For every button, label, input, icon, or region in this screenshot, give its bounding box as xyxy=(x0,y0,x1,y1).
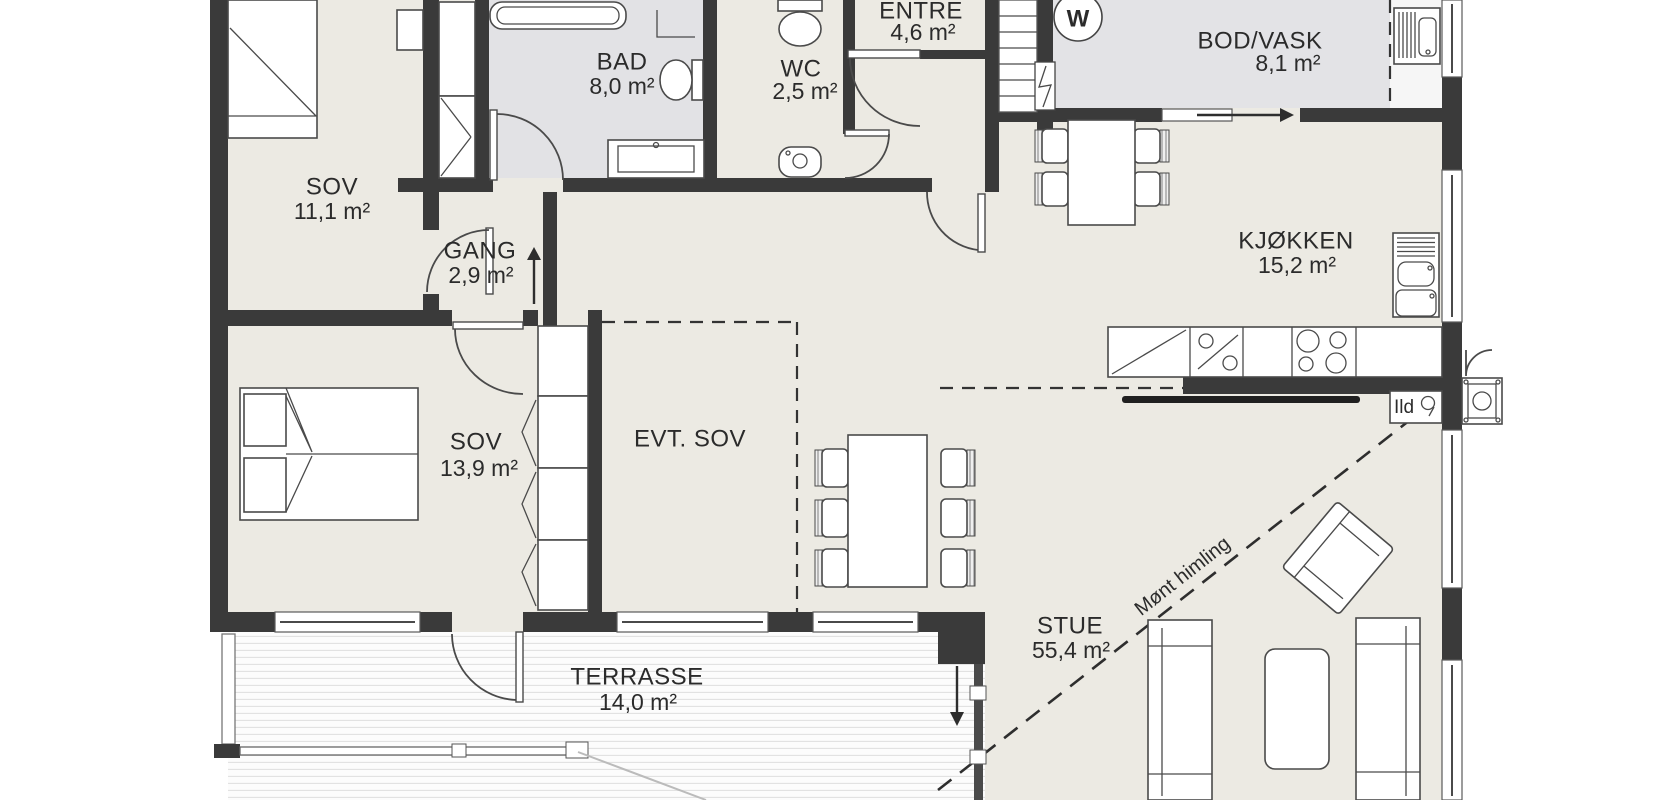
wall-segment xyxy=(588,310,602,612)
slide-handle xyxy=(970,750,986,764)
room-area: 11,1 m² xyxy=(294,198,371,224)
wall-segment xyxy=(543,192,557,326)
closet-box xyxy=(538,326,588,396)
room-label: EVT. SOV xyxy=(634,425,746,452)
wall-segment xyxy=(920,50,985,59)
chair-back xyxy=(967,450,975,486)
fireplace-label: Ild xyxy=(1394,397,1414,418)
railing-post xyxy=(566,742,588,758)
wall-segment xyxy=(1442,77,1462,170)
chair-back xyxy=(1160,173,1169,205)
door-leaf xyxy=(848,50,920,58)
chair xyxy=(822,449,848,487)
wall-segment xyxy=(703,0,717,192)
wall-segment xyxy=(768,612,813,632)
room-area: 14,0 m² xyxy=(599,689,677,715)
toilet-tank xyxy=(692,60,703,100)
toilet-icon xyxy=(660,60,692,100)
wall-segment xyxy=(228,310,452,326)
closet-box xyxy=(538,540,588,610)
wall-segment xyxy=(398,178,493,192)
toilet-icon xyxy=(779,12,821,46)
room-label: STUE xyxy=(1037,612,1103,639)
sofa xyxy=(1356,618,1420,800)
chair xyxy=(941,449,967,487)
wall-segment xyxy=(523,612,617,632)
railing-post xyxy=(452,744,466,757)
chair xyxy=(1042,129,1068,163)
floor-plan-page: W xyxy=(0,0,1670,800)
wall-segment xyxy=(475,0,489,192)
coffee-table xyxy=(1265,649,1329,769)
bed-double xyxy=(240,388,418,520)
room-area: 4,6 m² xyxy=(890,19,956,45)
air-intake-arc xyxy=(1466,350,1492,376)
dining-table-group xyxy=(815,435,975,587)
wall-segment xyxy=(843,0,855,134)
door-leaf xyxy=(453,322,523,329)
room-area: 8,1 m² xyxy=(1255,50,1321,76)
sofa xyxy=(1148,620,1212,800)
wall-segment xyxy=(423,0,439,230)
wall-segment xyxy=(1300,108,1442,122)
wc-sink xyxy=(779,147,821,177)
chair xyxy=(941,549,967,587)
door-leaf xyxy=(845,130,889,136)
room-label: SOV xyxy=(450,428,502,455)
sink-counter xyxy=(1393,233,1439,317)
bathtub xyxy=(490,2,626,29)
wall-segment xyxy=(843,178,855,192)
door-leaf xyxy=(490,110,497,180)
closet-box xyxy=(439,2,475,96)
chair xyxy=(822,549,848,587)
wall-segment xyxy=(563,178,703,192)
slide-handle xyxy=(970,686,986,700)
railing-corner-post xyxy=(214,744,240,758)
wall-segment xyxy=(855,178,932,192)
railing-left xyxy=(222,634,235,744)
room-label: KJØKKEN xyxy=(1238,227,1354,254)
wall-segment xyxy=(1442,322,1462,430)
chair-back xyxy=(1160,130,1169,162)
closet-box xyxy=(538,468,588,540)
chair xyxy=(1042,172,1068,206)
terrace-deck xyxy=(228,632,985,800)
bed-single xyxy=(228,0,317,138)
room-label: BAD xyxy=(597,48,648,75)
railing-bottom xyxy=(240,747,574,755)
lower-counter xyxy=(1108,327,1442,377)
laundry-sink xyxy=(1394,8,1440,64)
pillow xyxy=(244,458,286,512)
room-area: 2,5 m² xyxy=(772,78,838,104)
nightstand xyxy=(397,10,423,50)
wall-segment xyxy=(985,0,999,192)
room-area: 13,9 m² xyxy=(440,455,518,481)
room-area: 15,2 m² xyxy=(1258,252,1336,278)
chair xyxy=(1134,172,1160,206)
chair xyxy=(1134,129,1160,163)
electrical-panel xyxy=(1035,62,1055,110)
floor-plan-svg: W xyxy=(0,0,1670,800)
room-label: SOV xyxy=(306,173,358,200)
wall-segment xyxy=(938,612,985,664)
room-area: 8,0 m² xyxy=(589,73,655,99)
wall-segment xyxy=(717,178,843,192)
kitchen-table xyxy=(1068,120,1135,225)
closet-box xyxy=(538,396,588,468)
wall-segment xyxy=(1442,588,1462,660)
room-label: TERRASSE xyxy=(570,663,703,690)
stair-box xyxy=(999,0,1037,112)
bed xyxy=(228,0,317,138)
room-area: 55,4 m² xyxy=(1032,637,1110,663)
wall-segment xyxy=(420,612,452,632)
pillow xyxy=(244,394,286,446)
staircase xyxy=(999,0,1037,112)
washer-label: W xyxy=(1067,5,1090,32)
chair-back xyxy=(967,550,975,586)
wall-segment xyxy=(523,310,538,326)
chair xyxy=(941,499,967,537)
door-leaf xyxy=(516,632,523,702)
room-label: GANG xyxy=(444,237,517,264)
wall-segment xyxy=(210,612,275,632)
sliding-track xyxy=(974,664,983,800)
dining-table xyxy=(848,435,927,587)
wall-segment xyxy=(210,0,228,632)
bench-bar xyxy=(1122,396,1360,403)
toilet-tank xyxy=(778,0,822,11)
door-leaf xyxy=(978,194,985,252)
chair xyxy=(822,499,848,537)
closet-box xyxy=(439,96,475,178)
room-area: 2,9 m² xyxy=(448,262,514,288)
chair-back xyxy=(967,500,975,536)
